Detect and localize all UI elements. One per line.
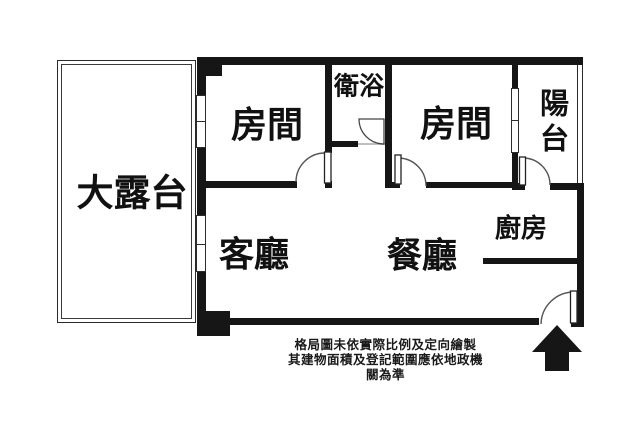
entrance-arrow-icon [532,325,582,371]
entrance-door-leaf [571,291,578,323]
bedroom1-door-leaf [325,152,332,183]
bedroom2-door-leaf [395,155,401,184]
room-label-living-room: 客廳 [219,238,289,273]
room-label-bedroom-2: 房間 [420,106,492,142]
bedroom1-door-arc [296,153,325,182]
room-label-terrace: 大露台 [77,175,188,212]
room-label-kitchen: 廚房 [495,215,547,241]
disclaimer-line-2: 其建物面積及登記範圍應依地政機關為準 [283,353,488,383]
balcony-door-arc [523,158,550,185]
bathroom-door-arc [359,119,384,144]
floor-plan: 大露台 房間 衛浴 房間 陽台 客廳 餐廳 廚房 格局圖未依實際比例及定向繪製 … [0,0,640,430]
bedroom2-door-arc [399,158,426,186]
balcony-door-leaf [520,157,526,185]
disclaimer-line-1: 格局圖未依實際比例及定向繪製 [283,338,488,353]
room-label-dining-room: 餐廳 [387,239,457,274]
room-label-balcony: 陽台 [537,88,566,158]
room-label-bathroom: 衛浴 [334,75,384,100]
entrance-door-arc [541,292,574,324]
room-label-bedroom-1: 房間 [231,107,303,143]
disclaimer-caption: 格局圖未依實際比例及定向繪製 其建物面積及登記範圍應依地政機關為準 [283,338,488,383]
